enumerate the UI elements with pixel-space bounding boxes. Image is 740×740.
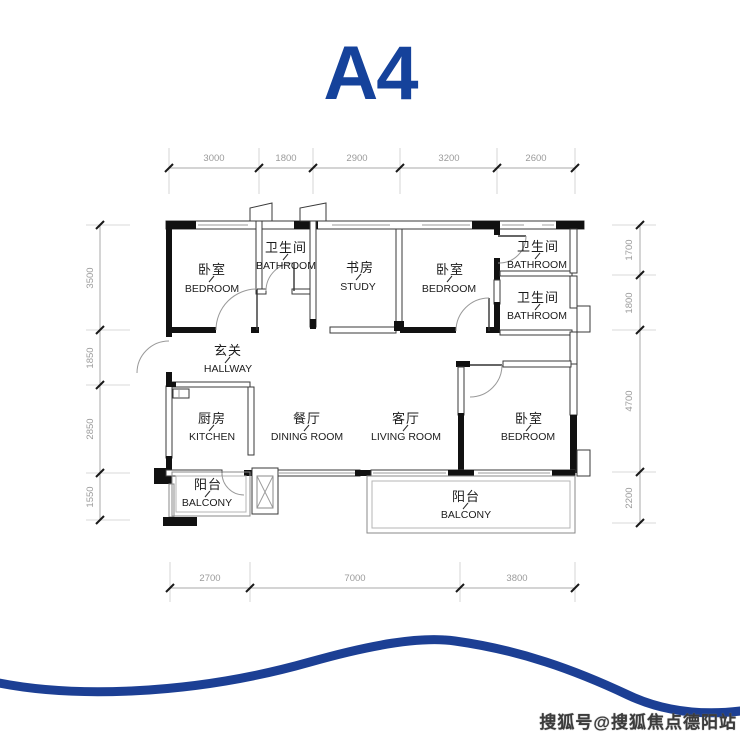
room-kitchen-en: KITCHEN [189, 431, 235, 443]
room-balcony-main-cn: 阳台 [452, 489, 480, 504]
room-dining-cn: 餐厅 [293, 411, 321, 426]
door-bedroom-top-right [456, 298, 489, 331]
dim-right-4: 2200 [624, 487, 635, 508]
room-balcony-left-cn: 阳台 [194, 477, 222, 492]
room-dining-en: DINING ROOM [271, 431, 343, 443]
room-bathroom-top-en: BATHROOM [256, 260, 316, 272]
room-bathroom-right-lower-en: BATHROOM [507, 310, 567, 322]
watermark: 搜狐号@搜狐焦点德阳站 [539, 708, 737, 733]
flue-shaft [252, 468, 278, 514]
room-living-cn: 客厅 [392, 411, 420, 426]
dim-bottom-2: 7000 [344, 573, 365, 584]
dim-left-1: 3500 [85, 267, 96, 288]
dim-top-4: 3200 [438, 153, 459, 164]
room-bedroom-top-left-en: BEDROOM [185, 283, 239, 295]
room-bathroom-right-upper-en: BATHROOM [507, 259, 567, 271]
dim-right-3: 4700 [624, 390, 635, 411]
dim-left-2: 1850 [85, 347, 96, 368]
dim-top-2: 1800 [275, 153, 296, 164]
room-hallway-en: HALLWAY [204, 363, 252, 375]
window-bump-icon [250, 203, 272, 221]
room-study-en: STUDY [340, 281, 376, 293]
dim-top-3: 2900 [346, 153, 367, 164]
balcony-railings [172, 472, 575, 533]
window-bump-icon [577, 450, 590, 476]
dim-top-1: 3000 [203, 153, 224, 164]
window-bump-icon [577, 306, 590, 332]
room-bathroom-right-lower-cn: 卫生间 [517, 290, 559, 305]
dim-left-3: 2850 [85, 418, 96, 439]
room-balcony-main-en: BALCONY [441, 509, 491, 521]
room-living-en: LIVING ROOM [371, 431, 441, 443]
room-balcony-left-en: BALCONY [182, 497, 232, 509]
window-bump-icon [300, 203, 326, 221]
dim-top-5: 2600 [525, 153, 546, 164]
room-bedroom-top-right-cn: 卧室 [436, 262, 464, 277]
room-bathroom-right-upper-cn: 卫生间 [517, 239, 559, 254]
door-bedroom-top-left [216, 289, 257, 330]
room-hallway-cn: 玄关 [214, 343, 242, 358]
dim-bottom-1: 2700 [199, 573, 220, 584]
wave-decoration [0, 640, 740, 713]
dim-right-1: 1700 [624, 239, 635, 260]
dim-left-4: 1550 [85, 486, 96, 507]
room-bathroom-top-cn: 卫生间 [265, 240, 307, 255]
room-bedroom-top-right-en: BEDROOM [422, 283, 476, 295]
floor-plan-svg: 3000 1800 2900 3200 2600 3500 1850 2850 … [0, 0, 740, 740]
room-labels: 卧室 BEDROOM 卫生间 BATHROOM 书房 STUDY 卧室 BEDR… [182, 239, 567, 521]
room-bedroom-bottom-cn: 卧室 [515, 411, 543, 426]
room-bedroom-bottom-en: BEDROOM [501, 431, 555, 443]
dim-right-2: 1800 [624, 292, 635, 313]
room-study-cn: 书房 [346, 260, 374, 275]
dim-bottom-3: 3800 [506, 573, 527, 584]
door-bedroom-bottom [470, 365, 502, 397]
room-kitchen-cn: 厨房 [198, 411, 226, 426]
room-bedroom-top-left-cn: 卧室 [198, 262, 226, 277]
gas-meter-icon [173, 389, 189, 398]
door-entry [137, 341, 169, 373]
